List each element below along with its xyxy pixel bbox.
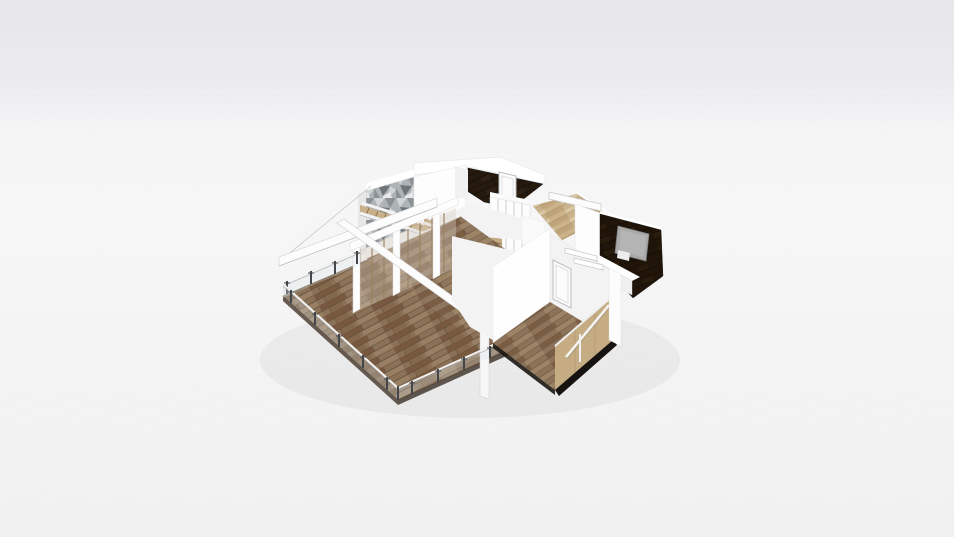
top-room-left-wall: [455, 166, 468, 200]
pergola-post[interactable]: [480, 327, 489, 399]
viewport-canvas[interactable]: 3D perspective render of a single-storey…: [0, 0, 954, 537]
design-viewport[interactable]: 3D perspective render of a single-storey…: [0, 0, 954, 537]
partition-post: [433, 209, 440, 279]
corner-trim: [609, 268, 621, 346]
stair-room-door[interactable]: [553, 260, 571, 308]
